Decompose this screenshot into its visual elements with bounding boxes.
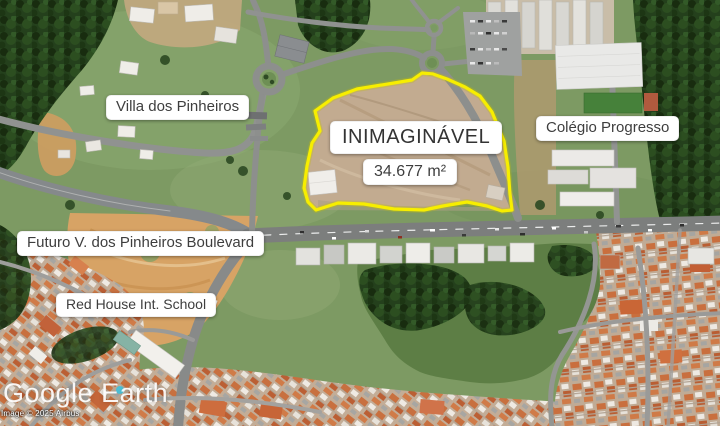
satellite-imagery	[0, 0, 720, 426]
label-boulevard: Futuro V. dos Pinheiros Boulevard	[17, 231, 264, 256]
label-colegio-progresso: Colégio Progresso	[536, 116, 679, 141]
label-red-house-school: Red House Int. School	[56, 293, 216, 317]
label-villa-dos-pinheiros: Villa dos Pinheiros	[106, 95, 249, 120]
label-lot-area: 34.677 m²	[363, 159, 457, 185]
imagery-attribution: Image © 2025 Airbus	[1, 409, 80, 418]
satellite-map-canvas[interactable]: Villa dos Pinheiros INIMAGINÁVEL 34.677 …	[0, 0, 720, 426]
google-earth-watermark: Google Earth	[3, 378, 168, 409]
label-lot-name: INIMAGINÁVEL	[330, 121, 502, 154]
